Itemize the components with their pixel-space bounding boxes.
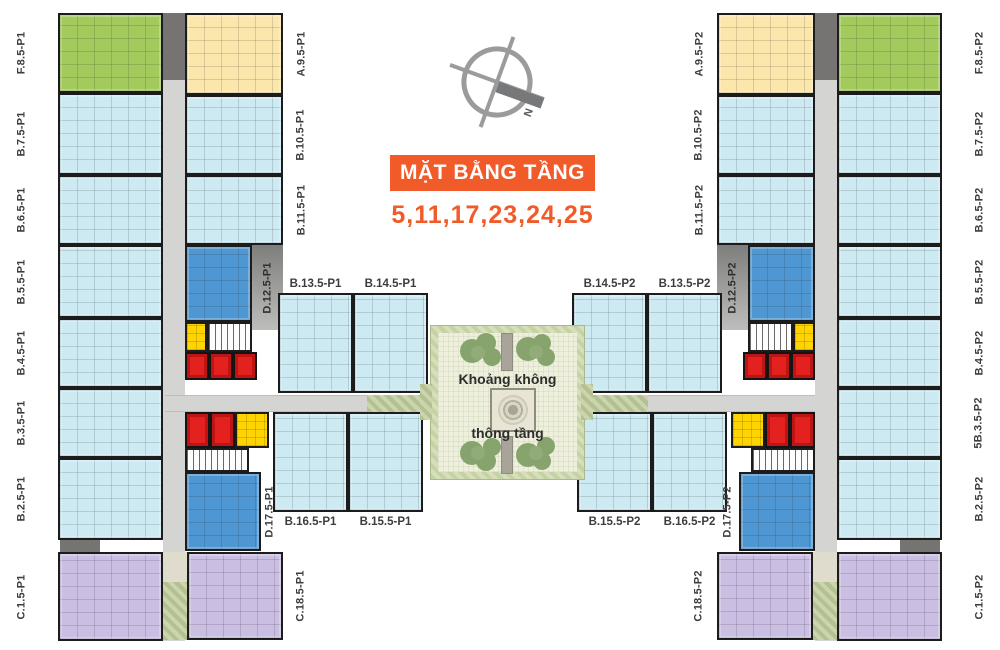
apartment-unit <box>748 245 815 322</box>
apartment-unit <box>837 13 942 93</box>
unit-label: F.8.5-P2 <box>964 13 994 93</box>
corridor <box>163 582 187 640</box>
unit-label: F.8.5-P1 <box>6 13 36 93</box>
corridor <box>815 13 837 641</box>
courtyard-label: thông tầng <box>438 425 577 441</box>
apartment-unit <box>837 458 942 540</box>
apartment-unit <box>739 472 815 551</box>
apartment-unit <box>577 412 652 512</box>
unit-label: C.1.5-P2 <box>964 552 994 641</box>
unit-label: B.13.5-P1 <box>278 276 353 292</box>
unit-label: C.18.5-P1 <box>288 552 314 640</box>
unit-label: B.15.5-P1 <box>348 514 423 530</box>
structural-block <box>163 13 185 80</box>
courtyard-connector <box>420 384 432 420</box>
elevator-cell <box>209 352 233 380</box>
apartment-unit <box>837 245 942 318</box>
unit-label: B.4.5-P2 <box>964 318 994 388</box>
elevator-cell <box>765 412 790 448</box>
elevator-cell <box>210 412 235 448</box>
service-block <box>235 412 269 448</box>
apartment-unit <box>717 552 813 640</box>
apartment-unit <box>58 552 163 641</box>
courtyard-connector <box>581 384 593 420</box>
unit-label: B.6.5-P2 <box>964 175 994 245</box>
apartment-unit <box>837 552 942 641</box>
apartment-unit <box>837 175 942 245</box>
apartment-unit <box>348 412 423 512</box>
elevator-cell <box>790 412 815 448</box>
apartment-unit <box>647 293 722 393</box>
unit-label: B.5.5-P2 <box>964 245 994 318</box>
stair-block <box>185 448 249 472</box>
corridor <box>165 395 367 412</box>
service-block <box>731 412 765 448</box>
apartment-unit <box>185 13 283 95</box>
unit-label: B.16.5-P2 <box>652 514 727 530</box>
elevator-cell <box>185 352 209 380</box>
elevator-cell <box>185 412 210 448</box>
floor-numbers: 5,11,17,23,24,25 <box>385 198 600 232</box>
courtyard: Khoảng không thông tầng <box>430 325 585 480</box>
unit-label: B.14.5-P1 <box>353 276 428 292</box>
apartment-unit <box>837 318 942 388</box>
elevator-cell <box>743 352 767 380</box>
compass-icon: N <box>433 22 563 140</box>
courtyard-lawn: Khoảng không thông tầng <box>438 333 577 472</box>
unit-label: D.17.5-P1 <box>257 472 283 551</box>
elevator-cell <box>791 352 815 380</box>
elevator-cell <box>233 352 257 380</box>
apartment-unit <box>353 293 428 393</box>
corridor <box>163 13 185 641</box>
unit-label: B.3.5-P1 <box>6 388 36 458</box>
corridor <box>813 582 837 640</box>
apartment-unit <box>58 318 163 388</box>
unit-label: 5B.3.5-P2 <box>964 388 994 458</box>
unit-label: B.14.5-P2 <box>572 276 647 292</box>
unit-label: B.16.5-P1 <box>273 514 348 530</box>
unit-label: C.1.5-P1 <box>6 552 36 641</box>
tree-icon <box>450 333 565 375</box>
corridor-bridge <box>585 395 648 412</box>
apartment-unit <box>717 175 815 245</box>
unit-label: B.4.5-P1 <box>6 318 36 388</box>
unit-label: A.9.5-P2 <box>686 13 712 95</box>
unit-label: A.9.5-P1 <box>288 13 314 95</box>
apartment-unit <box>717 13 815 95</box>
apartment-unit <box>185 245 252 322</box>
apartment-unit <box>837 388 942 458</box>
courtyard-label: Khoảng không <box>438 371 577 387</box>
apartment-unit <box>58 13 163 93</box>
service-block <box>185 322 207 352</box>
structural-block <box>900 540 940 552</box>
stair-block <box>751 448 815 472</box>
unit-label: B.11.5-P1 <box>288 175 314 245</box>
apartment-unit <box>837 93 942 175</box>
plan-title: MẶT BẰNG TẦNG <box>390 155 595 191</box>
structural-block <box>815 13 837 80</box>
unit-label: B.13.5-P2 <box>647 276 722 292</box>
unit-label: B.2.5-P1 <box>6 458 36 540</box>
unit-label: C.18.5-P2 <box>686 552 712 640</box>
apartment-unit <box>58 458 163 540</box>
apartment-unit <box>185 95 283 175</box>
apartment-unit <box>58 245 163 318</box>
corridor <box>813 552 837 582</box>
corridor <box>648 395 815 412</box>
stair-block <box>207 322 252 352</box>
compass-north-label: N <box>520 106 534 118</box>
elevator-cell <box>767 352 791 380</box>
apartment-unit <box>185 472 261 551</box>
service-block <box>793 322 815 352</box>
unit-label: B.2.5-P2 <box>964 458 994 540</box>
unit-label: B.11.5-P2 <box>686 175 712 245</box>
unit-label: B.7.5-P2 <box>964 93 994 175</box>
apartment-unit <box>717 95 815 175</box>
unit-label: B.10.5-P2 <box>686 95 712 175</box>
unit-label: B.15.5-P2 <box>577 514 652 530</box>
unit-label: D.17.5-P2 <box>715 472 741 551</box>
corridor <box>163 552 187 582</box>
structural-block <box>60 540 100 552</box>
apartment-unit <box>58 175 163 245</box>
unit-label: B.7.5-P1 <box>6 93 36 175</box>
unit-label: B.10.5-P1 <box>288 95 314 175</box>
apartment-unit <box>273 412 348 512</box>
unit-label: B.5.5-P1 <box>6 245 36 318</box>
stair-block <box>748 322 793 352</box>
apartment-unit <box>278 293 353 393</box>
apartment-unit <box>58 388 163 458</box>
apartment-unit <box>58 93 163 175</box>
apartment-unit <box>187 552 283 640</box>
apartment-unit <box>185 175 283 245</box>
floor-plan: Khoảng không thông tầng N MẶT BẰNG TẦNG … <box>0 0 1000 650</box>
unit-label: B.6.5-P1 <box>6 175 36 245</box>
